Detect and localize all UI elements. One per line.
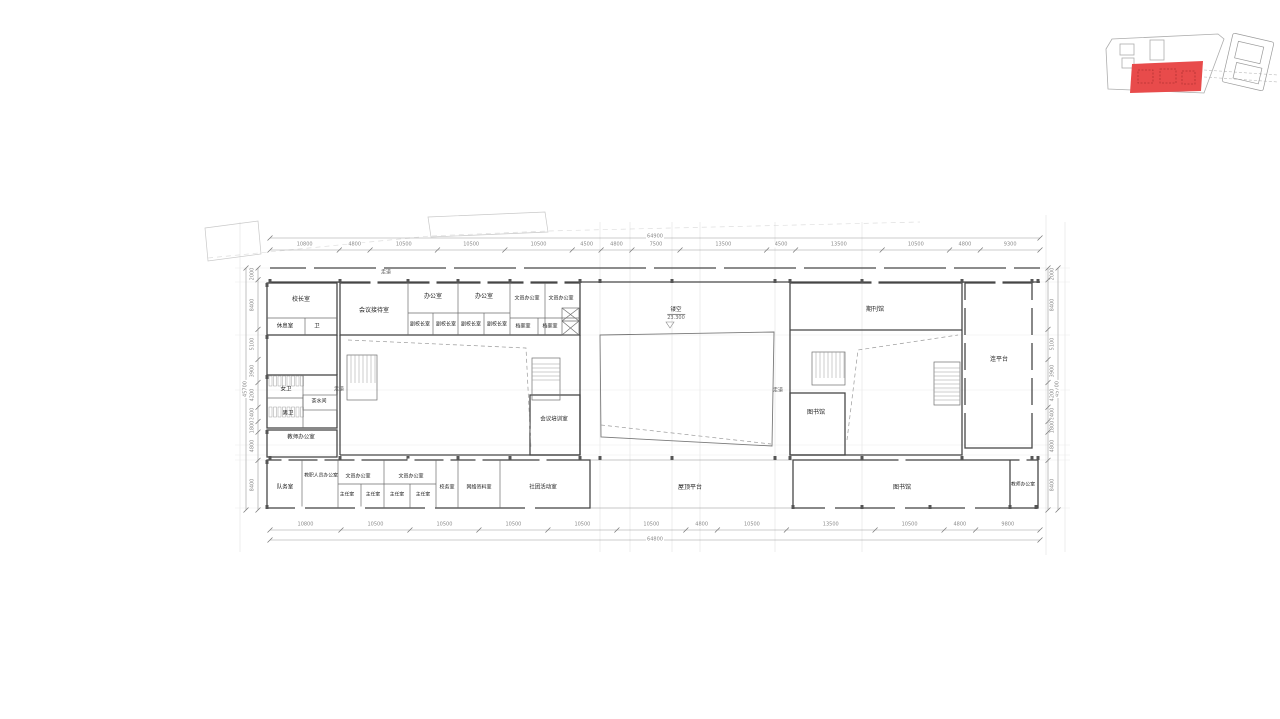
drawing-sheet: { "floor_plan": { "corridor_labels": { "…: [0, 0, 1280, 719]
level-symbol-icon: [666, 322, 674, 328]
key-plan-highlighted-building: [1130, 61, 1203, 93]
partition-walls: [267, 283, 960, 508]
site-context-outlines: [205, 212, 1046, 555]
key-plan: [1100, 30, 1280, 110]
outer-walls: [267, 268, 1040, 508]
grid-lines: [235, 222, 1070, 552]
key-plan-adjacent-building: [1222, 33, 1274, 91]
dashed-guides: [348, 335, 958, 449]
floor-plan-linework: [0, 0, 1280, 719]
